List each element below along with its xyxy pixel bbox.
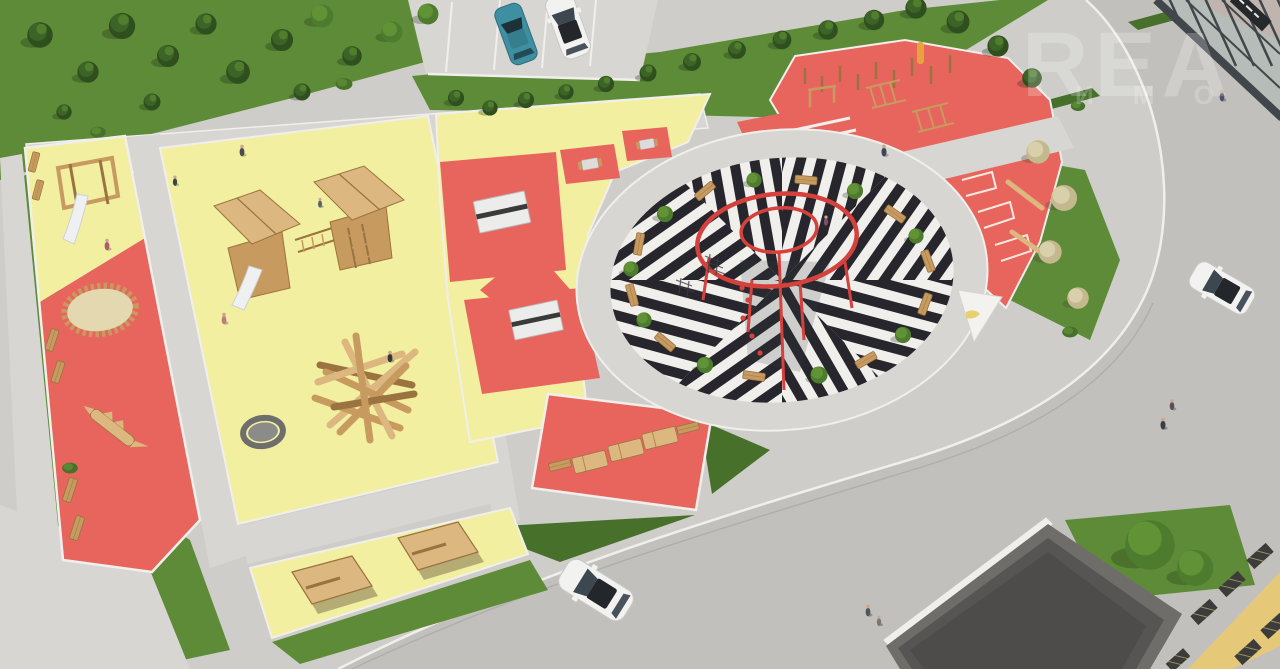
picnic-square-2: [622, 127, 672, 161]
scene: REA И М О: [0, 0, 1280, 669]
climbing-pole: [917, 42, 924, 64]
playground-aerial-render: REA И М О: [0, 0, 1280, 669]
watermark: REA И М О: [1022, 14, 1234, 116]
picnic-square-1: [560, 144, 620, 184]
watermark-line2: И М О: [1075, 80, 1230, 110]
